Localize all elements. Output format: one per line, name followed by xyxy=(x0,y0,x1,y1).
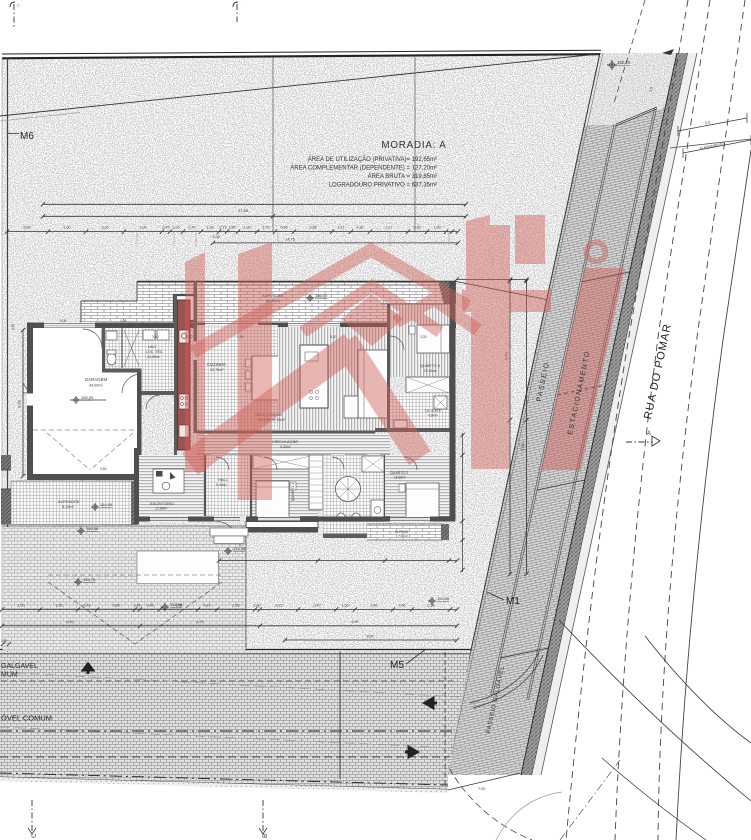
svg-text:0,15: 0,15 xyxy=(204,604,211,608)
svg-text:8,10m²: 8,10m² xyxy=(62,505,75,509)
svg-text:16,60m²: 16,60m² xyxy=(394,476,407,480)
svg-text:13,70m²: 13,70m² xyxy=(210,368,224,372)
svg-text:0,45: 0,45 xyxy=(147,604,154,608)
svg-text:9,40m²: 9,40m² xyxy=(216,483,227,487)
svg-text:8,05: 8,05 xyxy=(367,635,374,639)
svg-text:A: A xyxy=(647,431,651,437)
svg-text:5,00: 5,00 xyxy=(60,319,67,323)
svg-text:M6: M6 xyxy=(20,131,34,142)
svg-text:9,30m²: 9,30m² xyxy=(280,445,292,449)
svg-text:1,50: 1,50 xyxy=(233,604,240,608)
svg-text:ÁREA COMPLEMENTAR (DEPENDENTE): ÁREA COMPLEMENTAR (DEPENDENTE) = 127,20m… xyxy=(290,165,437,172)
svg-text:M5: M5 xyxy=(390,660,404,671)
svg-text:2,48: 2,48 xyxy=(134,604,141,608)
svg-text:1,05: 1,05 xyxy=(120,319,127,323)
svg-text:1,50: 1,50 xyxy=(56,604,63,608)
svg-text:3,10: 3,10 xyxy=(152,335,159,339)
svg-text:3,15: 3,15 xyxy=(102,226,109,230)
svg-text:ALPENDRE: ALPENDRE xyxy=(58,499,80,504)
svg-text:154,95: 154,95 xyxy=(100,502,113,507)
svg-text:12,85m²: 12,85m² xyxy=(155,507,168,511)
svg-text:1,00: 1,00 xyxy=(64,226,71,230)
svg-text:1,50: 1,50 xyxy=(342,604,349,608)
svg-text:ÓVEL COMUM: ÓVEL COMUM xyxy=(1,714,52,723)
svg-text:1,00: 1,00 xyxy=(18,604,25,608)
svg-text:154,06: 154,06 xyxy=(437,596,450,601)
svg-text:ÁREA DE UTILIZAÇÃO (PRIVATIVA): ÁREA DE UTILIZAÇÃO (PRIVATIVA)= 192,65m² xyxy=(308,156,437,163)
svg-text:C: C xyxy=(31,833,38,838)
svg-text:0,50: 0,50 xyxy=(11,324,15,330)
svg-text:155,03: 155,03 xyxy=(81,395,94,400)
svg-text:CIRCULAÇÃO: CIRCULAÇÃO xyxy=(272,439,298,444)
svg-text:QUARTO 1: QUARTO 1 xyxy=(291,483,295,501)
svg-text:8,66: 8,66 xyxy=(18,400,22,407)
svg-text:ESCRITÓRIO: ESCRITÓRIO xyxy=(150,501,174,506)
svg-text:1,00: 1,00 xyxy=(140,226,147,230)
svg-text:2,17: 2,17 xyxy=(386,226,393,230)
svg-text:5,15: 5,15 xyxy=(276,604,283,608)
svg-text:GARAGEM: GARAGEM xyxy=(85,377,108,382)
svg-text:155,28: 155,28 xyxy=(617,60,630,65)
svg-text:MORADIA: A: MORADIA: A xyxy=(381,140,446,151)
svg-text:5,00: 5,00 xyxy=(330,335,337,339)
svg-text:QUARTO 3: QUARTO 3 xyxy=(420,363,440,368)
svg-text:0,70: 0,70 xyxy=(189,226,196,230)
svg-text:QUARTO 2: QUARTO 2 xyxy=(390,471,408,475)
svg-text:LOC. TÉC.: LOC. TÉC. xyxy=(146,349,164,354)
svg-text:43,00m²: 43,00m² xyxy=(89,384,104,388)
svg-text:7,00: 7,00 xyxy=(478,787,485,791)
svg-text:ÁREA BRUTA = 319,85m²: ÁREA BRUTA = 319,85m² xyxy=(368,173,437,180)
svg-text:156,00: 156,00 xyxy=(315,293,328,298)
svg-text:0,40: 0,40 xyxy=(314,604,321,608)
svg-text:0,98: 0,98 xyxy=(113,604,120,608)
svg-text:4,25: 4,25 xyxy=(197,620,204,624)
svg-text:COZINHA: COZINHA xyxy=(207,362,226,367)
svg-text:155,06: 155,06 xyxy=(86,526,99,531)
svg-text:14,75: 14,75 xyxy=(285,238,295,242)
svg-text:I.S. SUITE: I.S. SUITE xyxy=(425,409,442,413)
svg-text:1,90: 1,90 xyxy=(207,226,214,230)
svg-text:27,65: 27,65 xyxy=(238,208,249,213)
svg-text:5,56: 5,56 xyxy=(521,443,525,450)
svg-text:0,30: 0,30 xyxy=(414,226,421,230)
svg-text:4,60m²: 4,60m² xyxy=(428,414,438,418)
svg-text:0,30: 0,30 xyxy=(357,226,364,230)
svg-text:1,50: 1,50 xyxy=(229,226,236,230)
svg-text:1,00: 1,00 xyxy=(434,226,441,230)
svg-text:2,46: 2,46 xyxy=(399,604,406,608)
svg-text:0,45: 0,45 xyxy=(281,226,288,230)
svg-text:LOGRADOURO PRIVATIVO = 637,35m: LOGRADOURO PRIVATIVO = 637,35m² xyxy=(329,183,437,189)
svg-text:20,40m²: 20,40m² xyxy=(424,369,438,373)
svg-text:B: B xyxy=(262,834,269,838)
svg-text:14,45m²: 14,45m² xyxy=(147,355,161,359)
svg-text:0,72: 0,72 xyxy=(220,226,227,230)
svg-text:0,50: 0,50 xyxy=(100,467,107,471)
svg-text:0,15: 0,15 xyxy=(84,604,91,608)
svg-text:154,98: 154,98 xyxy=(233,546,246,551)
svg-text:MUM: MUM xyxy=(1,672,18,679)
svg-text:LAV./: LAV./ xyxy=(148,345,156,349)
svg-text:0,30: 0,30 xyxy=(213,235,220,239)
svg-text:6,40: 6,40 xyxy=(67,620,74,624)
svg-text:1,50: 1,50 xyxy=(1,639,7,643)
svg-text:0,45: 0,45 xyxy=(371,604,378,608)
svg-text:2,70: 2,70 xyxy=(263,226,270,230)
svg-text:5,00: 5,00 xyxy=(24,226,31,230)
svg-text:M1: M1 xyxy=(506,596,520,607)
svg-text:2,17: 2,17 xyxy=(338,226,345,230)
svg-text:1,00: 1,00 xyxy=(173,226,180,230)
svg-text:HALL: HALL xyxy=(218,477,229,482)
svg-text:GALGAVEL: GALGAVEL xyxy=(1,663,38,670)
svg-text:0,98: 0,98 xyxy=(428,604,435,608)
svg-text:3,30: 3,30 xyxy=(420,335,427,339)
svg-text:6,00: 6,00 xyxy=(176,604,183,608)
svg-text:0,60: 0,60 xyxy=(254,604,261,608)
svg-text:154,76: 154,76 xyxy=(83,577,96,582)
svg-text:0,98: 0,98 xyxy=(310,226,317,230)
svg-text:7,10m²: 7,10m² xyxy=(398,534,408,538)
svg-text:1,00: 1,00 xyxy=(244,226,251,230)
svg-text:6,90: 6,90 xyxy=(352,620,359,624)
svg-text:0,45: 0,45 xyxy=(163,226,170,230)
